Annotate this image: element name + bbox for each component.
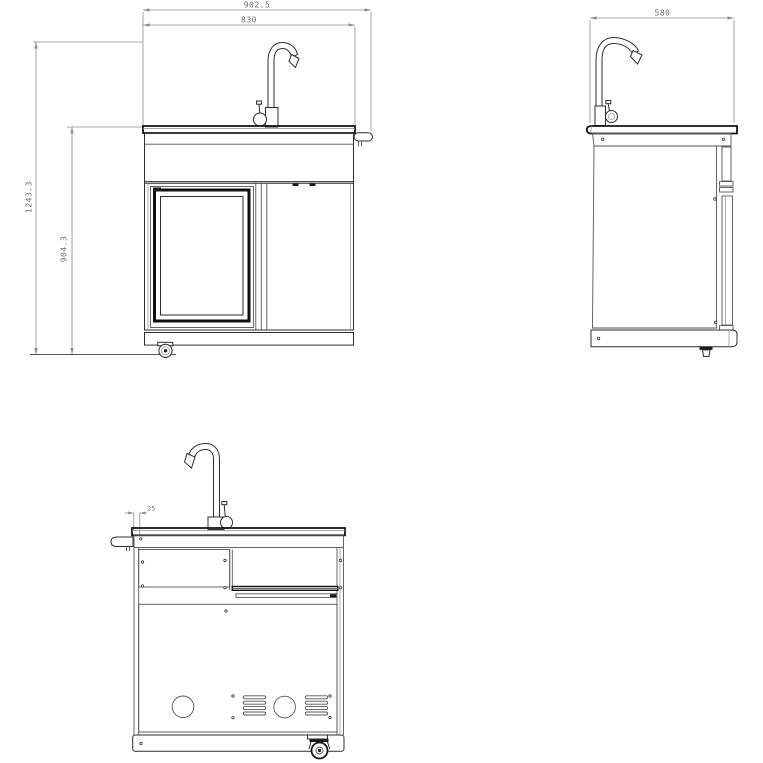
dim-label-panel-offset: 25: [147, 505, 155, 513]
tray-end-clip: [330, 594, 336, 597]
fridge-door[interactable]: [155, 190, 250, 321]
dim-label-overall-width: 902.5: [244, 1, 271, 10]
faucet-body: [595, 106, 606, 126]
door-hinge-mark: [310, 184, 316, 187]
screw: [329, 695, 331, 697]
foot: [703, 350, 711, 357]
screw: [140, 538, 142, 540]
screw: [140, 742, 142, 744]
faucet-handle-knob: [606, 111, 618, 123]
faucet-handle-cap: [257, 101, 262, 104]
screw: [232, 717, 234, 719]
screw: [601, 138, 604, 141]
screw: [232, 695, 234, 697]
screw: [141, 561, 143, 563]
technical-drawing: 902.5 830 1243.3 904.3: [0, 0, 763, 763]
faucet-handle-knob: [254, 113, 267, 126]
castor-mount-plate: [308, 735, 328, 739]
dim-label-overall-height: 1243.3: [25, 181, 34, 213]
castor-hub: [318, 749, 321, 752]
screw: [224, 559, 226, 561]
screw: [714, 198, 717, 201]
screw: [714, 321, 717, 324]
faucet-handle-cap: [222, 502, 227, 505]
screw: [339, 559, 341, 561]
dim-label-depth: 580: [655, 9, 671, 18]
side-handle-bracket[interactable]: [354, 133, 373, 141]
castor-front: [158, 342, 173, 357]
castor-swivel: [310, 739, 329, 742]
screw: [597, 337, 600, 340]
castor-hub: [164, 349, 167, 352]
dim-label-cabinet-width: 830: [241, 16, 257, 25]
faucet-body: [266, 108, 279, 128]
dim-label-worktop-height: 904.3: [60, 236, 69, 263]
canvas-background: [0, 0, 763, 763]
fridge-latch[interactable]: [153, 188, 161, 192]
faucet-handle-cap: [606, 101, 611, 104]
door-hinge-mark: [293, 184, 299, 187]
screw: [141, 585, 143, 587]
screw: [722, 138, 725, 141]
screw: [329, 716, 331, 718]
screw: [339, 587, 341, 589]
faucet-handle-knob: [221, 517, 233, 529]
screw: [225, 610, 227, 612]
screw: [224, 587, 226, 589]
side-handle-bracket[interactable]: [111, 537, 133, 547]
